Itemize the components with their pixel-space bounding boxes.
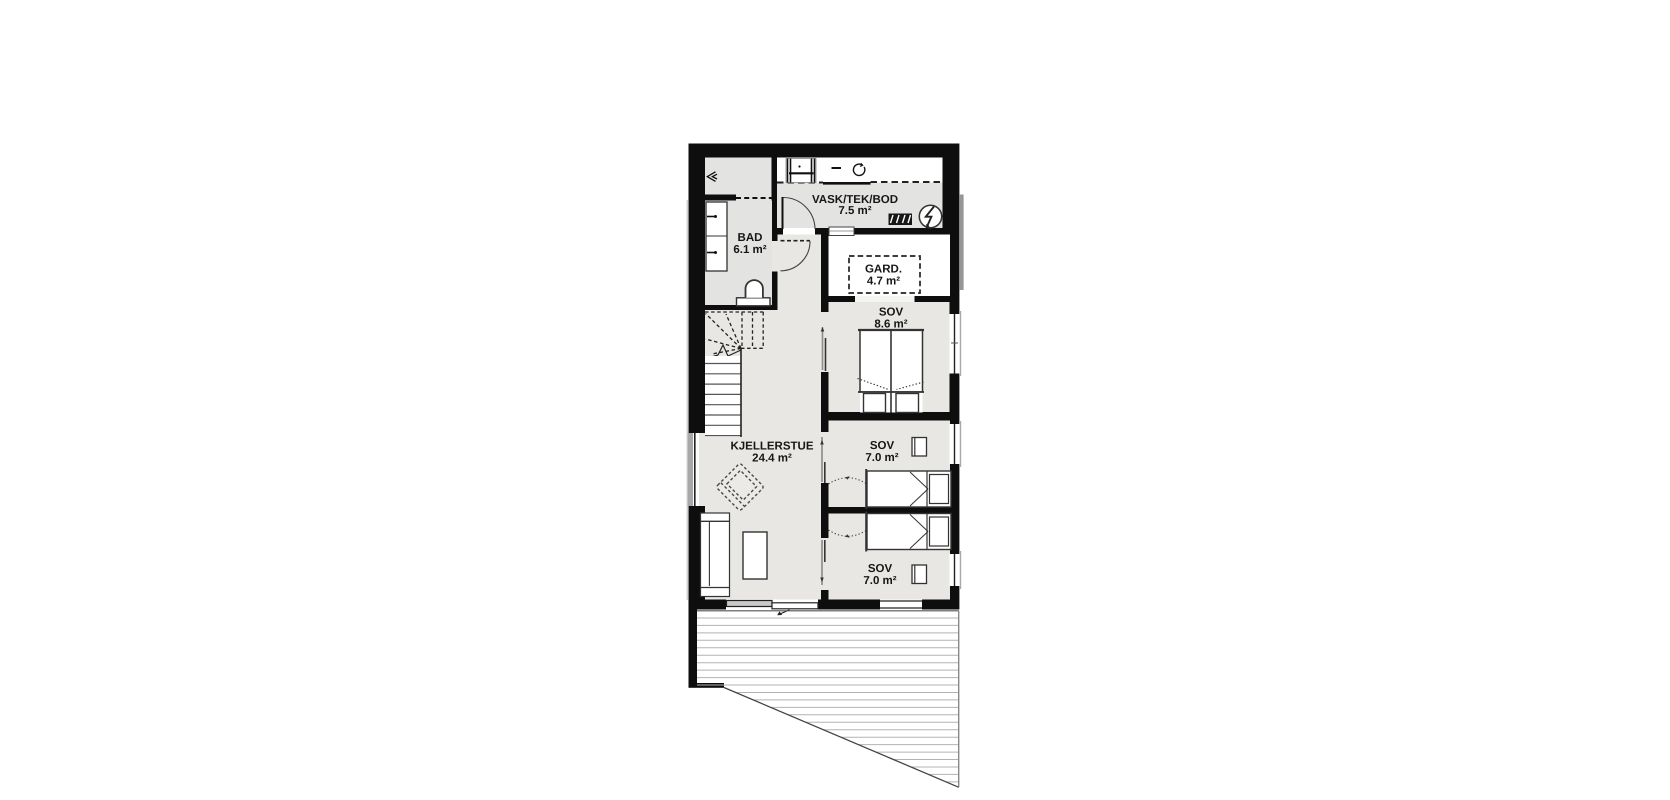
svg-text:7.0 m²: 7.0 m² — [863, 575, 896, 587]
svg-text:7.5 m²: 7.5 m² — [838, 205, 871, 217]
svg-text:8.6 m²: 8.6 m² — [874, 319, 907, 331]
svg-text:BAD: BAD — [738, 232, 763, 244]
svg-text:SOV: SOV — [870, 440, 895, 452]
svg-text:GARD.: GARD. — [865, 264, 902, 276]
svg-text:VASK/TEK/BOD: VASK/TEK/BOD — [812, 194, 898, 206]
svg-text:6.1 m²: 6.1 m² — [733, 244, 766, 256]
svg-text:4.7 m²: 4.7 m² — [867, 276, 900, 288]
svg-text:7.0 m²: 7.0 m² — [865, 452, 898, 464]
svg-text:24.4 m²: 24.4 m² — [752, 453, 792, 465]
svg-text:SOV: SOV — [879, 307, 904, 319]
svg-text:SOV: SOV — [868, 563, 893, 575]
svg-text:KJELLERSTUE: KJELLERSTUE — [730, 441, 813, 453]
